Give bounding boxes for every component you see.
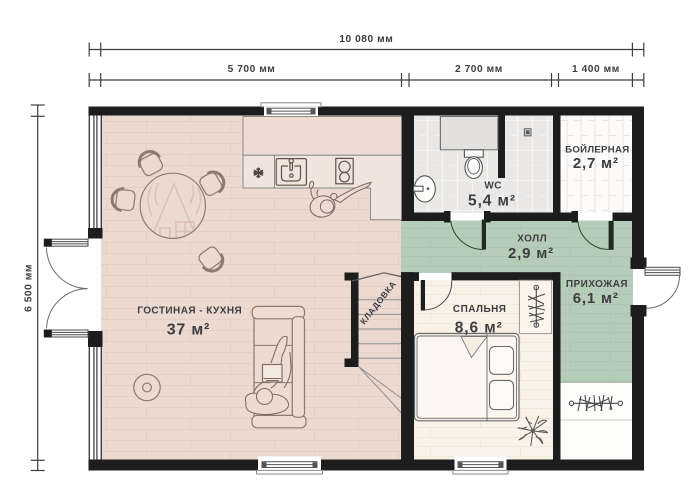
svg-text:6,1 м²: 6,1 м²	[573, 290, 619, 307]
svg-text:СПАЛЬНЯ: СПАЛЬНЯ	[453, 304, 507, 315]
svg-text:ПРИХОЖАЯ: ПРИХОЖАЯ	[566, 279, 628, 290]
svg-text:5 700 мм: 5 700 мм	[228, 64, 276, 75]
svg-text:6 500 мм: 6 500 мм	[24, 264, 35, 312]
svg-text:5,4 м²: 5,4 м²	[468, 193, 516, 210]
svg-text:2,7 м²: 2,7 м²	[573, 155, 619, 172]
svg-text:2,9 м²: 2,9 м²	[508, 245, 554, 262]
svg-text:2 700 мм: 2 700 мм	[455, 64, 503, 75]
svg-text:WC: WC	[484, 180, 502, 191]
svg-text:8,6 м²: 8,6 м²	[455, 319, 503, 336]
svg-text:1 400 мм: 1 400 мм	[572, 64, 620, 75]
svg-text:ГОСТИНАЯ - КУХНЯ: ГОСТИНАЯ - КУХНЯ	[137, 305, 242, 316]
svg-text:37 м²: 37 м²	[167, 322, 210, 339]
svg-text:ХОЛЛ: ХОЛЛ	[517, 233, 547, 244]
svg-text:10 080 мм: 10 080 мм	[339, 34, 393, 45]
svg-text:БОЙЛЕРНАЯ: БОЙЛЕРНАЯ	[565, 144, 629, 156]
